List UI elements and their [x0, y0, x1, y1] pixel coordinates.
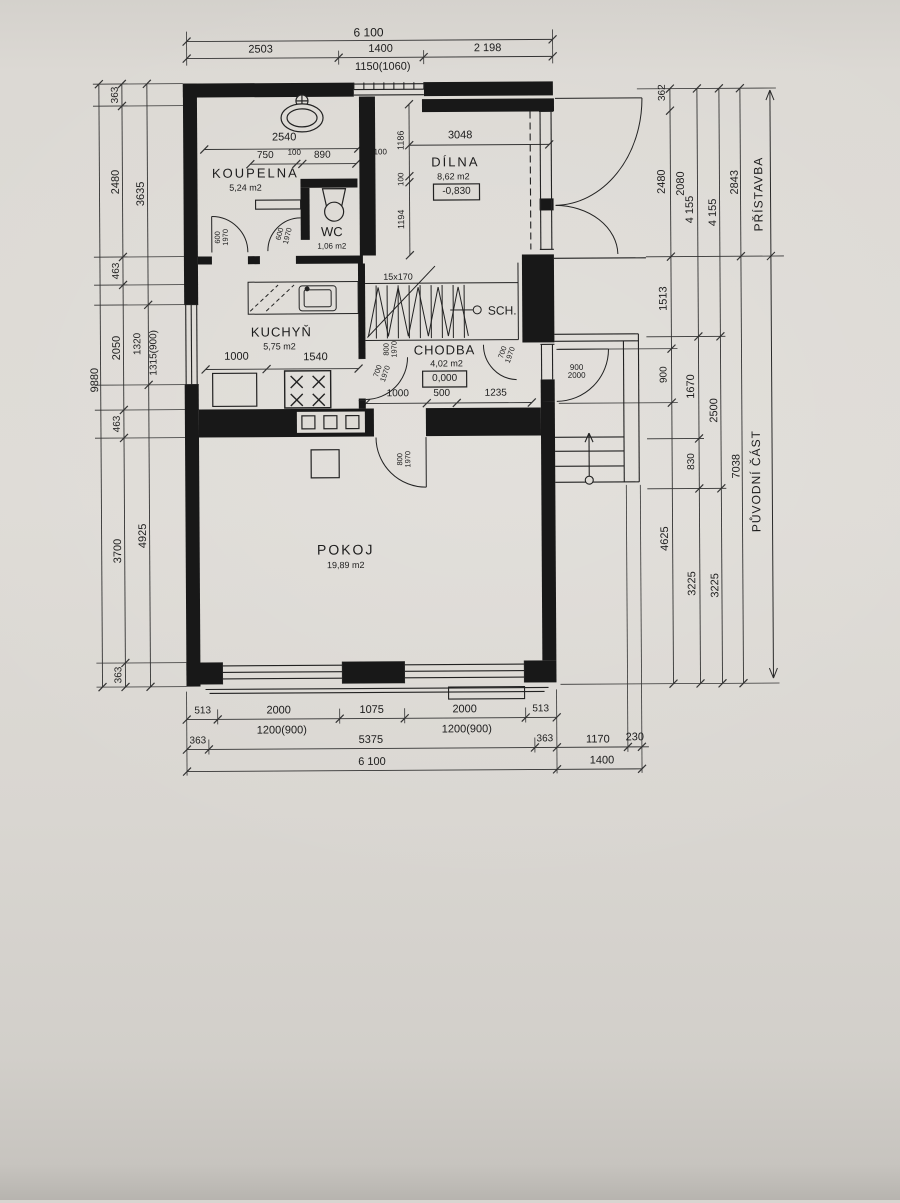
- dim-line: [96, 663, 186, 664]
- dim: 1670: [686, 374, 697, 399]
- dim: 2050: [112, 336, 123, 361]
- dim-window: 1200(900): [257, 725, 307, 737]
- dim-line: [626, 485, 628, 752]
- stair-section-mark: [473, 306, 481, 314]
- dim-line: [409, 104, 410, 255]
- bath-sink: [281, 95, 323, 132]
- dim: 2080: [676, 171, 687, 196]
- door-size: 8001970: [383, 341, 399, 358]
- dim-window: 1150(1060): [355, 62, 411, 74]
- dim: 2503: [248, 44, 273, 55]
- dim: 3225: [710, 573, 721, 598]
- dim: 513: [532, 704, 549, 714]
- dim: 362: [658, 84, 668, 101]
- room-label-sch: SCH.: [488, 304, 517, 316]
- dim: 1400: [368, 44, 393, 55]
- floorplan-sheet: 6 100250314002 1981150(1060)254075010089…: [0, 0, 900, 1203]
- dim: 513: [194, 706, 211, 716]
- stairs-spec: 15x170: [383, 273, 413, 282]
- dim: 1513: [658, 286, 669, 311]
- dim-line: [206, 369, 359, 370]
- dim: 890: [314, 151, 331, 161]
- dim: 1075: [359, 705, 384, 716]
- dim: 4925: [138, 524, 149, 549]
- dim: 1400: [590, 755, 615, 766]
- room-label-dilna: DÍLNA: [431, 155, 479, 169]
- dim: 500: [433, 389, 450, 399]
- room-label-kuchyn: KUCHYŇ: [251, 325, 312, 339]
- dim: 1000: [387, 389, 409, 399]
- dim-line: [559, 403, 678, 404]
- dim: 363: [114, 667, 124, 684]
- dim-line: [187, 692, 188, 776]
- dim-overall-width: 6 100: [353, 26, 383, 38]
- door-size: 8001970: [396, 451, 412, 468]
- door-size: 9002000: [568, 364, 586, 381]
- dim: 3225: [687, 571, 698, 596]
- room-area-kuchyn: 5,75 m2: [263, 342, 296, 351]
- dim-line: [97, 687, 187, 688]
- dim: 100: [374, 148, 387, 156]
- dim-line: [204, 149, 358, 150]
- dim: 1540: [303, 352, 328, 363]
- dim: 100: [288, 149, 301, 157]
- dim-overall-height: 9880: [90, 368, 101, 393]
- dim: 100: [397, 173, 405, 186]
- dim-line: [187, 56, 553, 58]
- toilet: [322, 189, 345, 222]
- dim-line: [94, 257, 198, 258]
- dim: 3048: [448, 130, 473, 141]
- dim: 363: [111, 87, 121, 104]
- dim: 2000: [452, 704, 477, 715]
- dim: 2480: [657, 169, 668, 194]
- dim: 2480: [111, 170, 122, 195]
- dim: 230: [626, 732, 644, 743]
- dim-line: [187, 717, 557, 719]
- dim: 4 155: [708, 199, 719, 227]
- dim: 1186: [397, 131, 406, 150]
- dim-line: [557, 689, 558, 773]
- level-chodba: 0,000: [432, 374, 457, 384]
- kitchen-counter: [248, 282, 358, 315]
- dim: 900: [659, 366, 669, 383]
- stove: [285, 371, 331, 408]
- dim-line: [93, 106, 183, 107]
- dim: 363: [536, 734, 553, 744]
- shaft-squares: [297, 412, 365, 433]
- door-dilna-leaf2: [556, 205, 618, 254]
- dim: 830: [687, 453, 697, 470]
- dim: 363: [189, 736, 206, 746]
- dim: 7038: [732, 454, 743, 479]
- dim-window: 1315(900): [149, 330, 159, 376]
- dim: 2500: [709, 398, 720, 423]
- annotation-puvodni-cast: PŮVODNÍ ČÁST: [750, 430, 763, 532]
- annotation-pristavba: PŘÍSTAVBA: [752, 157, 765, 232]
- pokoj-fixture: [311, 450, 339, 478]
- dim: 2540: [272, 132, 297, 143]
- dim: 3700: [113, 539, 124, 564]
- dim-line: [93, 84, 183, 85]
- dim-line: [122, 84, 126, 687]
- room-area-chodba: 4,02 m2: [430, 359, 463, 368]
- section-annotation-line: [766, 90, 778, 678]
- dim: 463: [112, 263, 122, 280]
- room-area-wc: 1,06 m2: [317, 243, 346, 251]
- room-area-dilna: 8,62 m2: [437, 172, 470, 181]
- room-label-chodba: CHODBA: [414, 343, 476, 357]
- dim-line: [640, 485, 642, 773]
- dim: 4625: [660, 526, 671, 551]
- dim-line: [670, 89, 674, 684]
- room-label-koupelna: KOUPELNA: [212, 166, 299, 180]
- dim: 2843: [730, 170, 741, 195]
- dim-window: 1200(900): [442, 724, 492, 736]
- kitchen-cabinet: [213, 373, 257, 406]
- dim: 1320: [133, 333, 143, 355]
- room-label-pokoj: POKOJ: [317, 542, 375, 557]
- dim-line: [95, 385, 185, 386]
- dim-line: [646, 256, 784, 257]
- dim: 1170: [586, 734, 610, 745]
- overhang-dashed-line: [530, 112, 531, 250]
- room-area-koupelna: 5,24 m2: [229, 184, 262, 193]
- dim: 463: [113, 416, 123, 433]
- dim: 4 155: [685, 196, 696, 224]
- dim: 1194: [397, 210, 406, 229]
- dim-line: [187, 769, 642, 772]
- dim-line: [561, 683, 780, 684]
- exterior-stairs: [554, 334, 639, 485]
- dim-line: [94, 285, 198, 286]
- door-size: 6001970: [214, 229, 230, 246]
- dim: 2 198: [474, 43, 502, 54]
- dim: 1235: [485, 389, 507, 399]
- dim-line: [409, 144, 549, 145]
- dim: 3635: [136, 182, 147, 207]
- dim: 6 100: [358, 757, 386, 768]
- dim-line: [95, 438, 199, 439]
- scanned-page: 6 100250314002 1981150(1060)254075010089…: [0, 0, 900, 1200]
- dim: 5375: [359, 735, 384, 746]
- level-dilna: -0,830: [442, 187, 470, 197]
- dim: 1000: [224, 352, 249, 363]
- dim-line: [187, 747, 649, 750]
- dim: 2000: [266, 705, 291, 716]
- dim-line: [94, 305, 184, 306]
- dim: 750: [257, 151, 274, 161]
- room-area-pokoj: 19,89 m2: [327, 561, 365, 570]
- room-label-wc: WC: [321, 225, 343, 238]
- wing-wall: [256, 200, 301, 209]
- door-dilna-leaf1: [555, 98, 643, 206]
- dim-line: [366, 402, 532, 403]
- dim-line: [95, 410, 199, 411]
